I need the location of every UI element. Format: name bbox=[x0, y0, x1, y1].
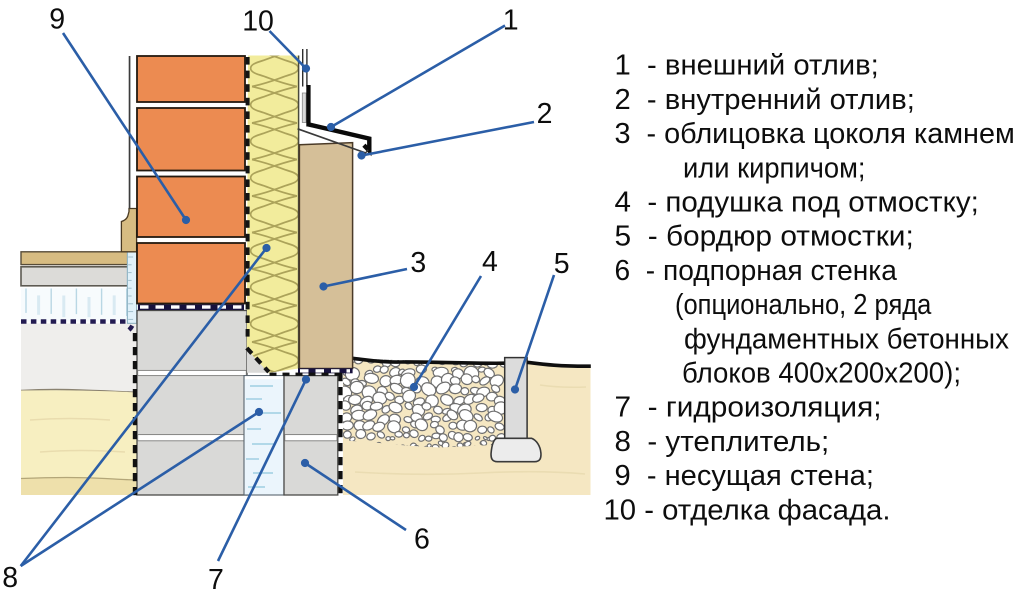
svg-text:блоков 400х200х200);: блоков 400х200х200); bbox=[682, 358, 961, 390]
svg-text:или кирпичом;: или кирпичом; bbox=[683, 152, 866, 184]
svg-text:4 - подушка под отмостку;: 4 - подушка под отмостку; bbox=[615, 187, 979, 219]
svg-text:10 - отделка фасада.: 10 - отделка фасада. bbox=[604, 494, 891, 526]
svg-text:10: 10 bbox=[242, 5, 274, 37]
svg-text:2: 2 bbox=[537, 98, 553, 130]
svg-text:(опционально, 2 ряда: (опционально, 2 ряда bbox=[675, 289, 932, 321]
svg-text:5: 5 bbox=[554, 248, 570, 280]
svg-text:5 - бордюр отмостки;: 5 - бордюр отмостки; bbox=[615, 221, 914, 253]
svg-text:1: 1 bbox=[503, 5, 519, 37]
svg-text:6: 6 bbox=[414, 523, 430, 555]
svg-text:3: 3 bbox=[410, 247, 426, 279]
svg-text:9 - несущая стена;: 9 - несущая стена; bbox=[615, 460, 874, 492]
svg-text:6 - подпорная стенка: 6 - подпорная стенка bbox=[615, 255, 898, 287]
svg-text:7 - гидроизоляция;: 7 - гидроизоляция; bbox=[615, 392, 882, 424]
svg-text:9: 9 bbox=[49, 4, 65, 36]
svg-text:фундаментных бетонных: фундаментных бетонных bbox=[684, 323, 1009, 355]
svg-text:4: 4 bbox=[482, 246, 498, 278]
svg-text:3 - облицовка цоколя камнем: 3 - облицовка цоколя камнем bbox=[615, 118, 1015, 150]
svg-text:1 - внешний отлив;: 1 - внешний отлив; bbox=[615, 50, 879, 82]
svg-text:7: 7 bbox=[208, 564, 224, 596]
svg-text:8: 8 bbox=[2, 562, 18, 594]
svg-text:2 - внутренний отлив;: 2 - внутренний отлив; bbox=[615, 84, 915, 116]
svg-text:8 - утеплитель;: 8 - утеплитель; bbox=[615, 426, 830, 458]
